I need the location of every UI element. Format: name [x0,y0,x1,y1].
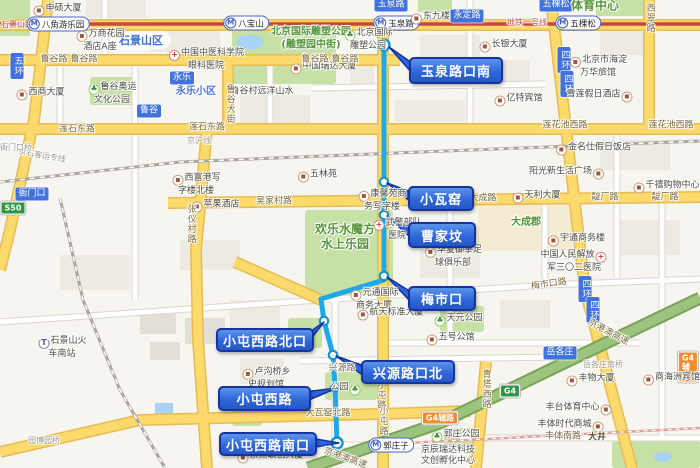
route-stop-marker[interactable] [329,351,337,359]
map-canvas[interactable]: 石景山路M八角游乐园M八宝山M玉泉路M五棵松M郭庄子地铁一号线玉泉路永定路五棵松… [0,0,700,468]
route-stop-marker[interactable] [379,40,390,51]
base-map [0,0,700,468]
route-stop-marker[interactable] [380,272,388,280]
route-stop-marker[interactable] [380,211,388,219]
route-stop-marker[interactable] [380,178,388,186]
